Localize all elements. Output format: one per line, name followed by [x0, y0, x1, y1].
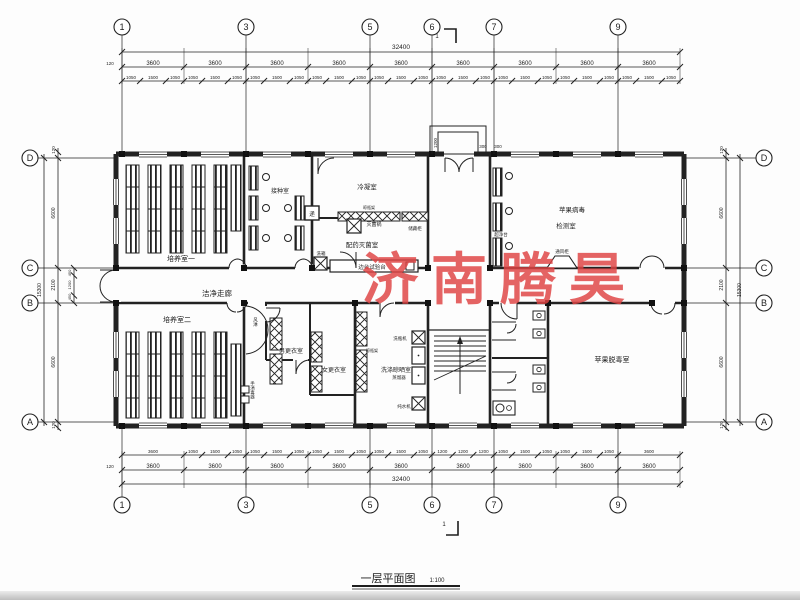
door-swing — [318, 158, 334, 174]
room-label-washing: 洗涤晾晒室 — [381, 366, 411, 374]
shelf-rack — [192, 332, 205, 418]
dim-left-edge-bot: 120 — [51, 421, 56, 429]
dim-text: 1050 — [126, 75, 137, 80]
dim-text: 1050 — [604, 449, 615, 454]
column — [305, 151, 311, 157]
grid-bubble-label: 5 — [367, 500, 372, 510]
dim-text: 1050 — [542, 75, 553, 80]
column — [309, 265, 315, 271]
dim-text: 1050 — [666, 75, 677, 80]
dim-left-cb: 2100 — [51, 279, 57, 290]
room-label-cultivation2: 培养室二 — [163, 315, 191, 324]
equip-label-pass-window: 递 — [309, 210, 315, 218]
locker — [311, 366, 322, 392]
locker — [270, 354, 282, 384]
dim-text: 1050 — [232, 449, 243, 454]
grid-bubble-label: 1 — [119, 500, 124, 510]
dim-left-sub-1200: 1200 — [67, 280, 72, 290]
toilet-bowl — [537, 331, 541, 335]
column — [553, 151, 559, 157]
watermark: 济南腾昊 — [362, 252, 638, 308]
clean-bench — [493, 203, 502, 231]
dim-text: 1050 — [560, 449, 571, 454]
room-label-condensation: 冷凝室 — [357, 182, 377, 191]
dim-text: 1050 — [312, 449, 323, 454]
clean-bench — [295, 226, 304, 250]
equip-label-bottlewasher: 洗瓶机 — [393, 335, 407, 342]
dim-text: 1050 — [356, 75, 367, 80]
dim-edge-120-bottom: 120 — [106, 464, 114, 469]
stool — [285, 235, 292, 242]
sink-bowl — [496, 404, 504, 412]
dot — [418, 355, 420, 357]
dim-bottom-total: 32400 — [392, 476, 410, 483]
door-swing — [445, 158, 459, 172]
page-edge-strip — [0, 591, 800, 600]
locker — [311, 332, 322, 362]
grid-bubble-label: 5 — [367, 22, 372, 32]
dim-text: 1050 — [560, 75, 571, 80]
clean-bench — [249, 196, 258, 220]
dim-entrance-300b: 300 — [494, 144, 502, 149]
dim-text: 1500 — [334, 75, 345, 80]
dim-text: 1500 — [458, 75, 469, 80]
drawing-scale: 1:100 — [429, 578, 445, 584]
dim-text: 3600 — [580, 464, 594, 470]
dim-right-ba: 6600 — [719, 356, 725, 367]
room-label-inoculation: 接种室 — [271, 187, 289, 195]
door-swing — [507, 324, 516, 333]
dim-right-dc: 6600 — [719, 207, 725, 218]
dim-text: 1200 — [458, 449, 469, 454]
shelf-rack — [231, 344, 241, 416]
dim-text: 1050 — [170, 75, 181, 80]
room-label-virus-test-1: 苹果病毒 — [559, 205, 586, 214]
dim-text: 1050 — [188, 75, 199, 80]
dim-text: 1050 — [498, 449, 509, 454]
dim-left-ba: 6600 — [51, 356, 57, 367]
wall-opening — [639, 265, 665, 272]
dim-text: 1050 — [294, 449, 305, 454]
dim-text: 1050 — [542, 449, 553, 454]
dim-edge-120-top: 120 — [106, 61, 114, 66]
room-label-cultivation1: 培养室一 — [167, 254, 195, 263]
dim-text: 1200 — [479, 449, 490, 454]
stair-arrowhead — [457, 336, 463, 344]
dim-text: 1050 — [374, 75, 385, 80]
dim-text: 1050 — [480, 75, 491, 80]
dim-text: 3600 — [642, 464, 656, 470]
toilet-bowl — [537, 313, 541, 317]
dim-text: 1050 — [356, 449, 367, 454]
equip-label-rack1: 晾瓶架 — [363, 204, 375, 210]
grid-bubble-label: D — [761, 153, 768, 163]
grid-bubble-label: 3 — [243, 22, 248, 32]
dim-text: 1050 — [188, 449, 199, 454]
grid-bubble-label: A — [27, 417, 33, 427]
dim-text: 3600 — [332, 61, 346, 67]
toilet-bowl — [537, 367, 541, 371]
grid-bubble-label: 7 — [491, 22, 496, 32]
grid-bubble-label: D — [27, 153, 34, 163]
wall-opening — [248, 300, 265, 307]
equip-label-rack2: 晾瓶架 — [366, 347, 378, 353]
dim-top-total: 32400 — [392, 44, 410, 51]
sink-bowl — [507, 406, 512, 411]
grid-bubble-label: B — [761, 298, 767, 308]
dim-text: 3600 — [580, 61, 594, 67]
grid-bubble-label: B — [27, 298, 33, 308]
dim-text: 1200 — [437, 449, 448, 454]
clean-bench — [493, 168, 502, 196]
dim-text: 3600 — [456, 61, 470, 67]
door-swing — [246, 330, 268, 354]
dim-text: 1050 — [436, 75, 447, 80]
room-label-detox: 苹果脱毒室 — [595, 355, 630, 364]
room-label-corridor: 洁净走廊 — [202, 288, 232, 298]
clean-bench — [249, 166, 258, 190]
dim-text: 1500 — [334, 449, 345, 454]
clean-bench — [249, 226, 258, 250]
dim-left-total: 15300 — [37, 283, 43, 297]
stool — [263, 235, 270, 242]
sanitizer-box — [241, 396, 249, 403]
shelf-rack — [214, 332, 227, 418]
dim-text: 1500 — [272, 75, 283, 80]
grid-bubble-label: A — [761, 417, 767, 427]
dim-text: 3600 — [394, 61, 408, 67]
dim-text: 1500 — [520, 75, 531, 80]
equip-label-handsanitizer: 手消毒器 — [250, 380, 256, 401]
equip-label-purewater: 纯水机 — [397, 403, 411, 410]
dim-text: 1500 — [644, 75, 655, 80]
column — [352, 300, 358, 306]
locker — [270, 318, 282, 350]
dim-left-edge-top: 120 — [51, 146, 56, 154]
shelf-rack — [170, 332, 183, 418]
wall-opening — [112, 270, 121, 302]
dim-text: 3600 — [456, 464, 470, 470]
dot — [418, 375, 420, 377]
column — [181, 151, 187, 157]
column — [553, 423, 559, 429]
dim-right-total: 15300 — [737, 283, 743, 297]
dim-text: 3600 — [518, 61, 532, 67]
grid-bubble-label: 1 — [119, 22, 124, 32]
door-swing — [507, 374, 516, 383]
grid-bubble-label: 3 — [243, 500, 248, 510]
dim-text: 3600 — [642, 61, 656, 67]
dim-text: 3600 — [332, 464, 346, 470]
dim-text: 1050 — [498, 75, 509, 80]
shelf-rack — [148, 332, 161, 418]
stool — [263, 174, 270, 181]
dim-text: 1500 — [582, 75, 593, 80]
dim-left-sub-450a: 450 — [67, 269, 72, 276]
dim-text: 3600 — [644, 449, 655, 454]
dim-left-sub-450b: 450 — [67, 293, 72, 300]
dim-right-cb: 2100 — [719, 279, 725, 290]
dim-text: 3600 — [146, 464, 160, 470]
dim-text: 3600 — [270, 464, 284, 470]
dim-text: 1500 — [210, 75, 221, 80]
section-mark-top-label: 1 — [435, 34, 439, 40]
dim-right-edge-top: 120 — [719, 146, 724, 154]
column — [241, 265, 247, 271]
stool — [506, 173, 513, 180]
dim-text: 1050 — [250, 449, 261, 454]
floor-plan-page: 3600360036003600360036003600360036001050… — [0, 0, 800, 600]
drawing-title: 一层平面图 — [361, 572, 416, 585]
equip-label-storage: 储藏柜 — [408, 225, 422, 232]
dim-text: 1050 — [418, 449, 429, 454]
shelf-rack — [231, 165, 241, 231]
dim-text: 1500 — [396, 449, 407, 454]
dim-text: 1500 — [520, 449, 531, 454]
section-mark-bottom-bracket — [446, 521, 458, 535]
section-mark-top-bracket — [444, 29, 456, 43]
dim-text: 3600 — [518, 464, 532, 470]
dim-text: 1500 — [582, 449, 593, 454]
door-swing — [459, 158, 473, 172]
column — [181, 423, 187, 429]
column — [649, 300, 655, 306]
equip-label-distiller: 蒸馏器 — [392, 374, 406, 381]
locker — [356, 312, 367, 346]
shelf-rack — [126, 332, 139, 418]
toilet-bowl — [537, 385, 541, 389]
dim-text: 1050 — [250, 75, 261, 80]
locker — [356, 350, 367, 392]
room-label-virus-test-2: 检测室 — [556, 221, 576, 230]
column — [305, 423, 311, 429]
room-label-men-change: 男更衣室 — [279, 347, 303, 355]
grid-bubble-label: 9 — [615, 22, 620, 32]
grid-bubble-label: 6 — [429, 22, 434, 32]
section-mark-bottom-label: 1 — [442, 522, 446, 528]
dim-text: 1500 — [272, 449, 283, 454]
grid-bubble-label: 9 — [615, 500, 620, 510]
grid-bubble-label: 6 — [429, 500, 434, 510]
dim-right-edge-bot: 120 — [719, 421, 724, 429]
grid-bubble-label: 7 — [491, 500, 496, 510]
dim-text: 1500 — [148, 75, 159, 80]
dim-entrance-depth: 1200 — [433, 137, 438, 148]
storage-cabinet — [402, 212, 428, 221]
stool — [285, 205, 292, 212]
equip-label-cleanbench: 超净台 — [494, 231, 508, 238]
sanitizer-box — [241, 386, 249, 393]
clean-bench — [295, 196, 304, 220]
column — [241, 300, 247, 306]
dim-text: 3600 — [208, 464, 222, 470]
dim-text: 1500 — [210, 449, 221, 454]
dim-text: 1050 — [232, 75, 243, 80]
dim-text: 1050 — [312, 75, 323, 80]
equip-label-washbox: 洗箱 — [317, 250, 326, 257]
wall-opening — [293, 357, 308, 364]
dim-left-dc: 6600 — [51, 207, 57, 218]
dim-text: 1050 — [418, 75, 429, 80]
dim-text: 1050 — [374, 449, 385, 454]
dim-text: 1500 — [396, 75, 407, 80]
grid-bubble-label: C — [761, 263, 768, 273]
room-label-women-change: 女更衣室 — [322, 366, 346, 374]
dim-text: 3600 — [148, 449, 159, 454]
dim-text: 3600 — [394, 464, 408, 470]
dim-text: 1050 — [294, 75, 305, 80]
dim-text: 3600 — [208, 61, 222, 67]
dim-text: 3600 — [146, 61, 160, 67]
dim-entrance-300a: 300 — [479, 144, 487, 149]
equip-label-sterilizer: 灭菌锅 — [366, 221, 381, 228]
dim-text: 1050 — [604, 75, 615, 80]
dim-text: 3600 — [270, 61, 284, 67]
dim-text: 1050 — [622, 75, 633, 80]
grid-bubble-label: C — [27, 263, 34, 273]
stool — [263, 205, 270, 212]
equip-label-airshower: 风淋 — [253, 317, 259, 328]
stool — [506, 208, 513, 215]
